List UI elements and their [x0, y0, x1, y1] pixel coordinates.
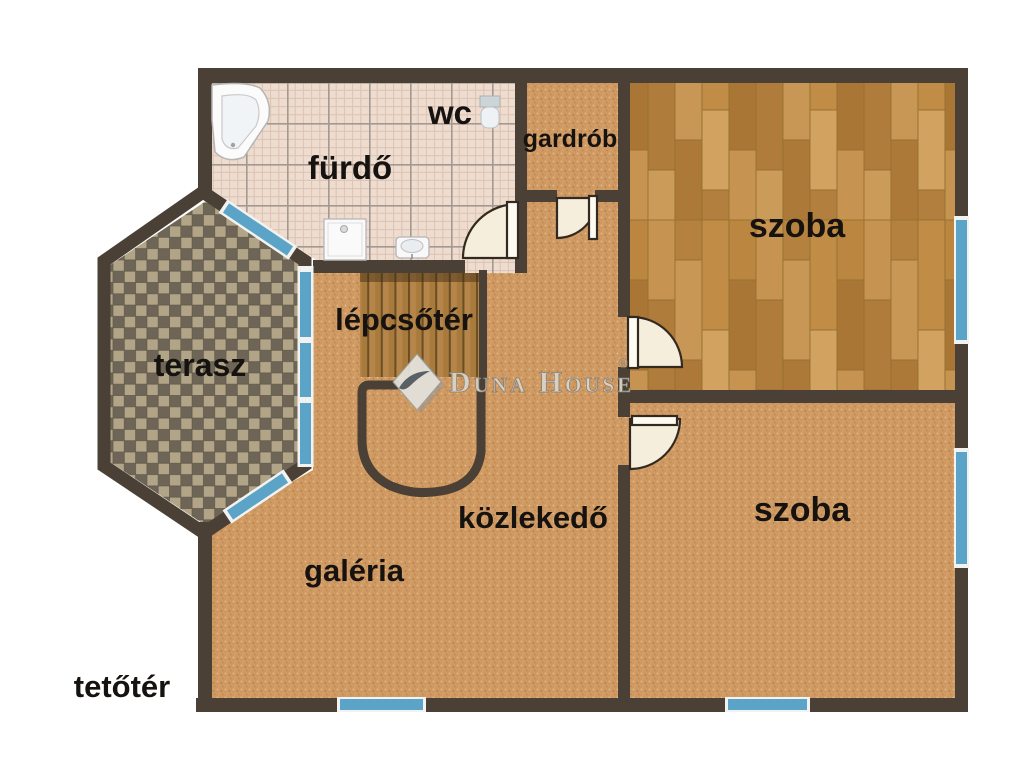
szoba-bottom-doorway-floor	[618, 417, 630, 465]
sink-icon	[396, 237, 429, 259]
wall-szoba-divider	[618, 390, 968, 403]
wall-bottom	[196, 698, 968, 712]
wall-gardrob-bottom-a	[527, 190, 557, 202]
watermark-text: Duna House	[449, 366, 634, 399]
wall-szoba-left-c	[618, 465, 630, 698]
label-kozlekedo: közlekedő	[458, 500, 608, 535]
label-lepcsoter: lépcsőtér	[335, 302, 473, 337]
floor-plan-page: Duna House ® fürdő wc gardrób szoba lépc…	[0, 0, 1024, 758]
watermark-registered-mark: ®	[618, 357, 629, 372]
label-terasz: terasz	[154, 347, 247, 383]
label-galeria: galéria	[304, 553, 405, 588]
label-wc: wc	[427, 94, 472, 131]
wall-gardrob-bottom-b	[595, 190, 618, 202]
wall-top	[198, 68, 968, 83]
wall-szoba-left-a	[618, 68, 630, 317]
label-gardrob: gardrób	[523, 125, 617, 153]
stairs-top-shadow	[360, 273, 482, 282]
shower-icon	[324, 219, 366, 260]
floor-plan-canvas: Duna House ® fürdő wc gardrób szoba lépc…	[0, 0, 1024, 758]
toilet-icon	[480, 96, 500, 128]
room-szoba-bottom-floor	[630, 403, 955, 698]
wall-galeria-left	[198, 522, 212, 712]
furdo-doorway-floor	[465, 258, 517, 273]
door-gardrob	[557, 196, 597, 239]
wall-bath-left	[198, 68, 212, 194]
wall-bath-bottom	[313, 260, 465, 273]
label-szoba-bottom: szoba	[754, 491, 851, 529]
label-szoba-top: szoba	[749, 207, 846, 245]
label-furdo: fürdő	[308, 149, 392, 186]
label-tetoter: tetőtér	[74, 669, 170, 704]
